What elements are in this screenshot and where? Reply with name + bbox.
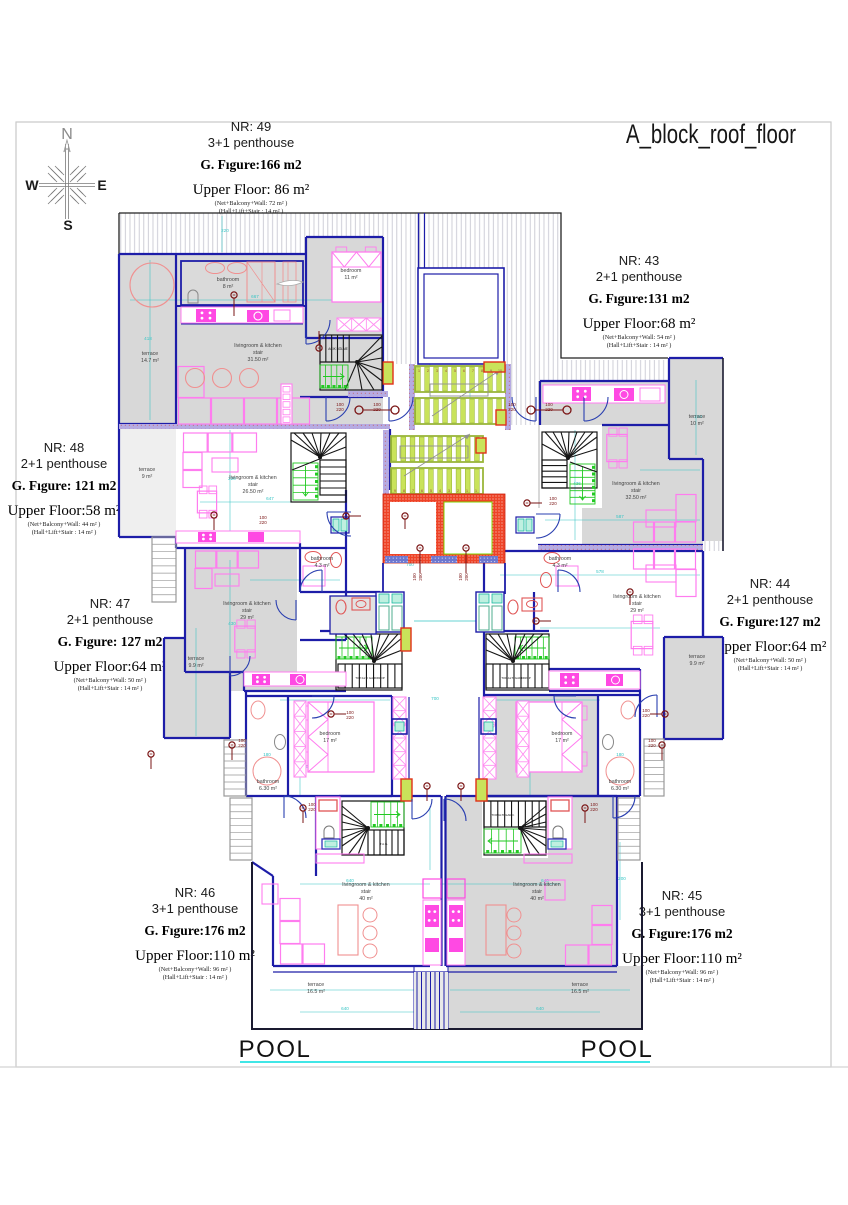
svg-text:220: 220 [549,501,557,506]
svg-text:G. Fıgure: 121 m2: G. Fıgure: 121 m2 [12,478,117,493]
svg-text:3: 3 [436,369,438,373]
svg-text:2: 2 [427,369,429,373]
svg-text:4.3 m²: 4.3 m² [552,563,567,569]
svg-text:livingroom & kitchen: livingroom & kitchen [513,882,560,888]
svg-text:G. Fıgure:176 m2: G. Fıgure:176 m2 [144,923,246,938]
svg-text:220: 220 [346,715,354,720]
svg-text:(Net+Balcony+Wall: 96 m² ): (Net+Balcony+Wall: 96 m² ) [646,969,719,976]
svg-text:1: 1 [466,489,468,493]
svg-text:16.5 m²: 16.5 m² [307,989,325,995]
svg-text:10: 10 [498,369,502,373]
svg-text:8 m²: 8 m² [223,284,234,290]
svg-text:200: 200 [464,573,469,581]
svg-text:220: 220 [545,407,553,412]
svg-text:(Net+Balcony+Wall: 44 m² ): (Net+Balcony+Wall: 44 m² ) [28,521,101,528]
svg-text:220: 220 [642,713,650,718]
svg-text:578: 578 [596,569,604,574]
svg-text:5: 5 [430,489,432,493]
svg-text:Upper Floor:58 m²: Upper Floor:58 m² [8,503,121,519]
svg-text:5: 5 [454,369,456,373]
svg-text:stair: stair [242,608,252,614]
svg-text:3+1 penthouse: 3+1 penthouse [152,901,238,916]
svg-text:29 m²: 29 m² [630,608,644,614]
svg-text:17 m²: 17 m² [323,738,337,744]
svg-text:31.50 m²: 31.50 m² [248,357,269,363]
svg-text:2+1 penthouse: 2+1 penthouse [727,592,813,607]
svg-text:bedroom: bedroom [320,731,341,737]
svg-text:terrace: terrace [689,414,706,420]
svg-text:10 m²: 10 m² [690,421,704,427]
svg-text:6: 6 [421,489,423,493]
svg-text:14.7 m²: 14.7 m² [141,358,159,364]
svg-text:terrace: terrace [308,982,325,988]
svg-text:stair: stair [632,601,642,607]
svg-text:G. Fıgure:166 m2: G. Fıgure:166 m2 [200,157,302,172]
svg-text:8: 8 [481,369,483,373]
svg-text:bathroom: bathroom [217,277,240,283]
svg-text:640: 640 [536,1006,544,1011]
svg-text:2: 2 [457,489,459,493]
svg-text:1: 1 [475,489,477,493]
svg-text:(Net+Balcony+Wall: 54 m² ): (Net+Balcony+Wall: 54 m² ) [603,334,676,341]
svg-text:stair: stair [361,889,371,895]
svg-text:TOP.ALTI GARDIROP: TOP.ALTI GARDIROP [355,676,385,680]
svg-text:9: 9 [490,369,492,373]
svg-text:700: 700 [431,696,439,701]
svg-text:Upper Floor:110 m²: Upper Floor:110 m² [622,951,742,967]
svg-text:G. Fıgure:131 m2: G. Fıgure:131 m2 [588,291,690,306]
svg-text:livingroom & kitchen: livingroom & kitchen [612,481,659,487]
svg-text:9.9 m²: 9.9 m² [188,663,203,669]
svg-text:180: 180 [616,752,624,757]
svg-text:terrace: terrace [142,351,159,357]
svg-text:180: 180 [263,752,271,757]
svg-text:6.30 m²: 6.30 m² [259,786,277,792]
svg-text:(Net+Balcony+Wall: 50 m² ): (Net+Balcony+Wall: 50 m² ) [74,677,147,684]
svg-text:667: 667 [251,294,259,299]
svg-text:livingroom & kitchen: livingroom & kitchen [229,475,276,481]
svg-text:NR: 48: NR: 48 [44,440,84,455]
svg-text:NR: 49: NR: 49 [231,119,271,134]
svg-text:POOL: POOL [239,1036,312,1063]
svg-text:(Hall+Lift+Stair : 14 m² ): (Hall+Lift+Stair : 14 m² ) [78,685,143,692]
svg-text:NR: 43: NR: 43 [619,253,659,268]
svg-text:17 m²: 17 m² [555,738,569,744]
svg-text:4: 4 [439,489,441,493]
svg-text:3+1 penthouse: 3+1 penthouse [639,904,725,919]
svg-text:S: S [63,217,72,233]
svg-text:6: 6 [463,369,465,373]
svg-text:7: 7 [412,489,414,493]
svg-text:stair: stair [532,889,542,895]
svg-text:stair: stair [248,482,258,488]
svg-text:terrace: terrace [139,467,156,473]
svg-text:6.30 m²: 6.30 m² [611,786,629,792]
svg-text:32.50 m²: 32.50 m² [626,495,647,501]
svg-text:7: 7 [472,369,474,373]
svg-text:2+1 penthouse: 2+1 penthouse [21,456,107,471]
svg-text:livingroom & kitchen: livingroom & kitchen [234,343,281,349]
svg-text:3: 3 [448,489,450,493]
svg-text:G. Fıgure:127 m2: G. Fıgure:127 m2 [719,614,821,629]
svg-text:Upper Floor: 86 m²: Upper Floor: 86 m² [193,182,310,198]
svg-text:livingroom & kitchen: livingroom & kitchen [223,601,270,607]
svg-text:9 m²: 9 m² [142,474,153,480]
svg-text:AÇIK BÖLME: AÇIK BÖLME [328,347,348,351]
svg-text:26.50 m²: 26.50 m² [243,489,264,495]
svg-text:647: 647 [266,496,274,501]
svg-text:livingroom & kitchen: livingroom & kitchen [613,594,660,600]
svg-text:9: 9 [394,489,396,493]
svg-text:436: 436 [573,481,581,486]
svg-text:terrace: terrace [188,656,205,662]
svg-text:(Hall+Lift+Stair : 14 m² ): (Hall+Lift+Stair : 14 m² ) [163,974,228,981]
svg-text:200: 200 [418,573,423,581]
svg-text:640: 640 [341,1006,349,1011]
svg-text:T.A.G.: T.A.G. [380,842,389,846]
svg-text:(Hall+Lift+Stair : 14 m² ): (Hall+Lift+Stair : 14 m² ) [738,665,803,672]
svg-text:E: E [97,177,106,193]
svg-text:220: 220 [238,743,246,748]
svg-text:220: 220 [308,807,316,812]
svg-text:W: W [25,177,39,193]
svg-text:9.9 m²: 9.9 m² [689,661,704,667]
svg-text:bathroom: bathroom [311,556,334,562]
svg-text:bedroom: bedroom [341,268,362,274]
svg-text:G. Fıgure:176 m2: G. Fıgure:176 m2 [631,926,733,941]
svg-text:(Net+Balcony+Wall: 50 m² ): (Net+Balcony+Wall: 50 m² ) [734,657,807,664]
svg-text:220: 220 [336,407,344,412]
svg-text:1: 1 [418,369,420,373]
svg-text:2+1 penthouse: 2+1 penthouse [596,269,682,284]
svg-text:POOL: POOL [581,1036,654,1063]
svg-text:(Hall+Lift+Stair : 14 m² ): (Hall+Lift+Stair : 14 m² ) [607,342,672,349]
svg-text:TOP.ALTI GARDIROP: TOP.ALTI GARDIROP [501,676,531,680]
svg-text:Upper Floor:68 m²: Upper Floor:68 m² [583,316,696,332]
svg-text:bedroom: bedroom [552,731,573,737]
svg-text:TOP.ALTI GARD.: TOP.ALTI GARD. [491,813,514,817]
svg-text:8: 8 [403,489,405,493]
svg-text:bathroom: bathroom [609,779,632,785]
svg-text:220: 220 [590,807,598,812]
svg-text:4.3 m²: 4.3 m² [314,563,329,569]
svg-text:N: N [61,126,73,143]
svg-text:220: 220 [259,520,267,525]
svg-text:Upper Floor:110 m²: Upper Floor:110 m² [135,948,255,964]
svg-text:Upper Floor:64 m²: Upper Floor:64 m² [54,659,167,675]
svg-text:terrace: terrace [572,982,589,988]
svg-text:100: 100 [458,573,463,581]
svg-text:NR: 46: NR: 46 [175,885,215,900]
svg-text:NR: 47: NR: 47 [90,596,130,611]
svg-text:livingroom & kitchen: livingroom & kitchen [342,882,389,888]
svg-text:NR: 44: NR: 44 [750,576,790,591]
svg-text:430: 430 [228,621,236,626]
svg-text:418: 418 [144,336,152,341]
svg-text:40 m²: 40 m² [359,896,373,902]
svg-text:A_block_roof_floor: A_block_roof_floor [626,119,796,149]
svg-text:200: 200 [618,876,626,881]
svg-text:Upper Floor:64 m²: Upper Floor:64 m² [714,639,827,655]
svg-text:2+1 penthouse: 2+1 penthouse [67,612,153,627]
svg-text:stair: stair [631,488,641,494]
svg-text:220: 220 [648,743,656,748]
svg-text:(Hall+Lift+Stair : 14 m² ): (Hall+Lift+Stair : 14 m² ) [650,977,715,984]
svg-text:G. Fıgure: 127 m2: G. Fıgure: 127 m2 [58,634,163,649]
svg-text:100: 100 [412,573,417,581]
svg-text:(Net+Balcony+Wall: 96 m² ): (Net+Balcony+Wall: 96 m² ) [159,966,232,973]
svg-text:terrace: terrace [689,654,706,660]
svg-text:220: 220 [508,407,516,412]
svg-text:220: 220 [221,228,229,233]
svg-text:NR: 45: NR: 45 [662,888,702,903]
svg-text:16.5 m²: 16.5 m² [571,989,589,995]
svg-text:(Hall+Lift+Stair : 14 m² ): (Hall+Lift+Stair : 14 m² ) [32,529,97,536]
svg-text:stair: stair [253,350,263,356]
svg-text:(Net+Balcony+Wall: 72 m² ): (Net+Balcony+Wall: 72 m² ) [215,200,288,207]
svg-text:11 m²: 11 m² [344,275,357,281]
svg-text:bathroom: bathroom [257,779,280,785]
svg-text:3+1 penthouse: 3+1 penthouse [208,135,294,150]
svg-text:40 m²: 40 m² [530,896,544,902]
svg-text:587: 587 [616,514,624,519]
svg-text:29 m²: 29 m² [240,615,254,621]
svg-text:220: 220 [373,407,381,412]
svg-text:bathroom: bathroom [549,556,572,562]
svg-text:4: 4 [445,369,447,373]
